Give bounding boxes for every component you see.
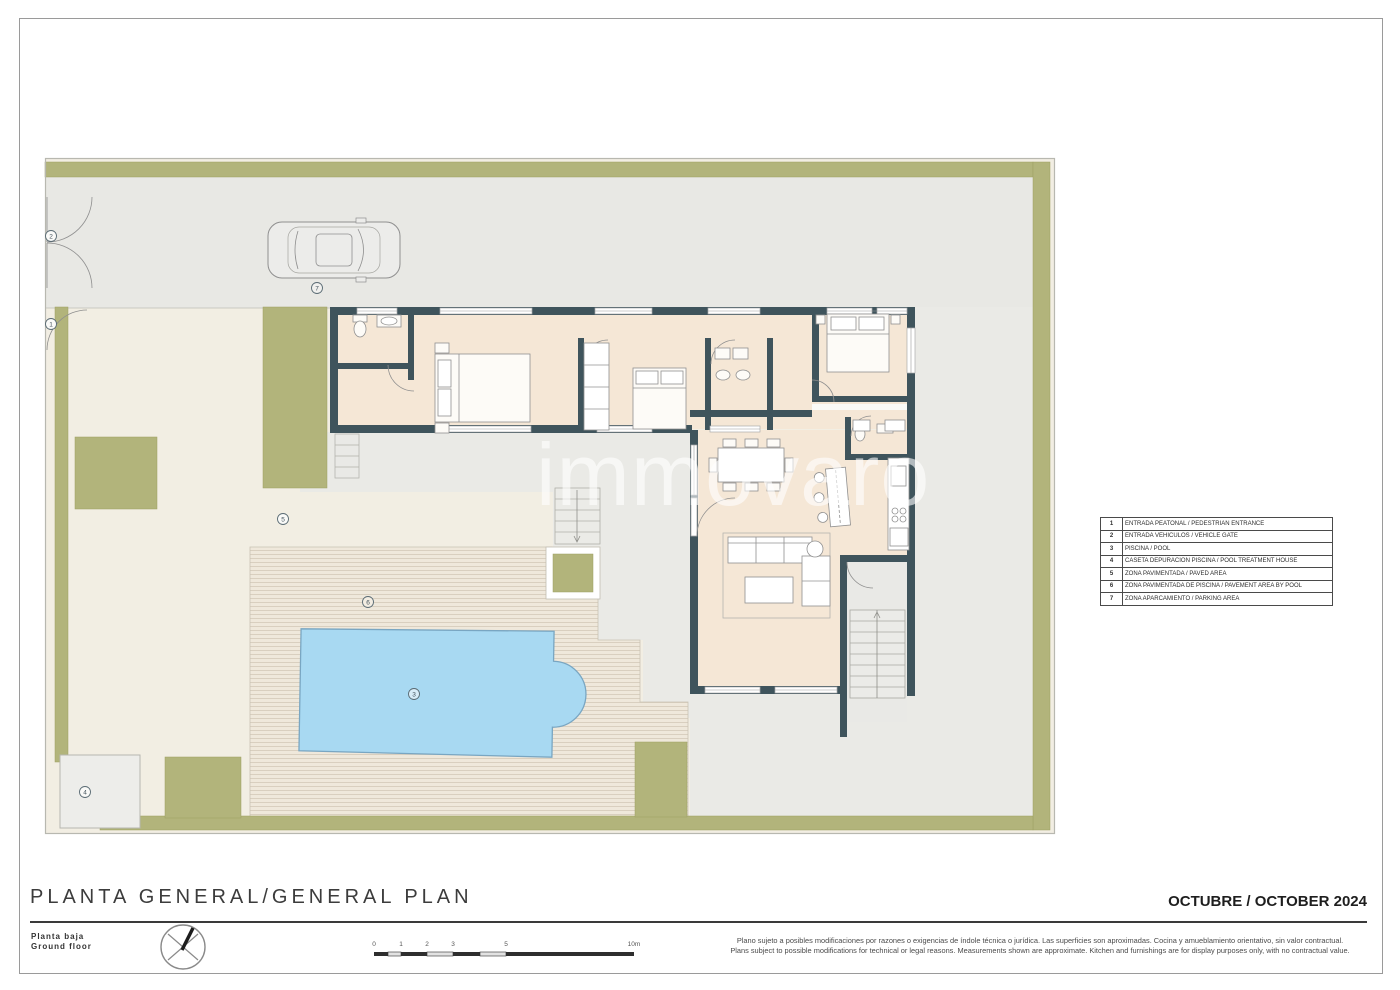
- nightstand: [435, 423, 449, 433]
- bedroom-wing-floor: [333, 310, 911, 429]
- site-plan-drawing: 1 2 3 4 5 6 7: [45, 158, 1055, 834]
- svg-text:2: 2: [49, 233, 53, 240]
- legend-row: 7ZONA APARCAMIENTO / PARKING AREA: [1101, 593, 1333, 606]
- hedge-east: [1033, 162, 1050, 830]
- nightstand: [891, 315, 900, 324]
- disclaimer: Plano sujeto a posibles modificaciones p…: [690, 936, 1390, 956]
- car: [268, 218, 400, 282]
- nightstand: [435, 343, 449, 353]
- floor-label-en: Ground floor: [31, 942, 92, 952]
- hedge-west: [55, 307, 68, 762]
- legend-row: 4CASETA DEPURACION PISCINA / POOL TREATM…: [1101, 555, 1333, 568]
- marker-5: 5: [278, 514, 289, 525]
- svg-text:0: 0: [372, 941, 376, 948]
- floor-label-es: Planta baja: [31, 932, 92, 942]
- svg-text:2: 2: [425, 941, 429, 948]
- svg-text:4: 4: [83, 789, 87, 796]
- sink: [715, 348, 730, 359]
- garden-patch-southwest: [165, 757, 241, 818]
- disclaimer-es: Plano sujeto a posibles modificaciones p…: [690, 936, 1390, 946]
- coffee-table: [745, 577, 793, 603]
- pool-treatment-house: [60, 755, 140, 828]
- north-compass-icon: [152, 915, 214, 982]
- floor-label: Planta baja Ground floor: [31, 932, 92, 952]
- marker-2: 2: [46, 231, 57, 242]
- garden-patch-west: [75, 437, 157, 509]
- terrace-steps: [555, 488, 600, 544]
- svg-text:10m: 10m: [628, 941, 641, 948]
- appliance: [885, 420, 905, 431]
- svg-text:1: 1: [399, 941, 403, 948]
- svg-text:5: 5: [281, 516, 285, 523]
- scale-bar: 0 1 2 3 5 10m: [366, 934, 656, 971]
- planter: [553, 554, 593, 592]
- legend-row: 1ENTRADA PEATONAL / PEDESTRIAN ENTRANCE: [1101, 518, 1333, 531]
- legend-row: 2ENTRADA VEHICULOS / VEHICLE GATE: [1101, 530, 1333, 543]
- svg-text:1: 1: [49, 321, 53, 328]
- legend-row: 5ZONA PAVIMENTADA / PAVED AREA: [1101, 568, 1333, 581]
- drawing-date: OCTUBRE / OCTOBER 2024: [1168, 893, 1367, 910]
- marker-6: 6: [363, 597, 374, 608]
- garden-patch-house-west: [263, 307, 327, 488]
- title-rule: [30, 921, 1367, 923]
- hedge-north: [45, 162, 1033, 177]
- wardrobe: [584, 343, 609, 430]
- legend-table: 1ENTRADA PEATONAL / PEDESTRIAN ENTRANCE …: [1100, 517, 1333, 606]
- exterior-staircase: [850, 610, 905, 698]
- marker-3: 3: [409, 689, 420, 700]
- svg-text:5: 5: [504, 941, 508, 948]
- marker-4: 4: [80, 787, 91, 798]
- svg-text:6: 6: [366, 599, 370, 606]
- appliance: [853, 420, 870, 431]
- site-plan: 1 2 3 4 5 6 7: [45, 158, 1055, 834]
- garden-patch-deck: [635, 742, 687, 817]
- drawing-title: PLANTA GENERAL/GENERAL PLAN: [30, 886, 473, 909]
- svg-text:7: 7: [315, 285, 319, 292]
- disclaimer-en: Plans subject to possible modifications …: [690, 946, 1390, 956]
- side-table: [807, 541, 823, 557]
- legend-row: 6ZONA PAVIMENTADA DE PISCINA / PAVEMENT …: [1101, 580, 1333, 593]
- entry-steps: [335, 434, 359, 478]
- svg-text:3: 3: [412, 691, 416, 698]
- dining-table: [718, 448, 784, 482]
- nightstand: [816, 315, 825, 324]
- pool: [299, 627, 587, 758]
- marker-1: 1: [46, 319, 57, 330]
- legend-row: 3PISCINA / POOL: [1101, 543, 1333, 556]
- sofa: [728, 537, 812, 563]
- sink: [733, 348, 748, 359]
- marker-7: 7: [312, 283, 323, 294]
- south-terrace: [690, 690, 980, 818]
- svg-text:3: 3: [451, 941, 455, 948]
- parking-drive: [45, 177, 1033, 308]
- corridor: [812, 404, 912, 410]
